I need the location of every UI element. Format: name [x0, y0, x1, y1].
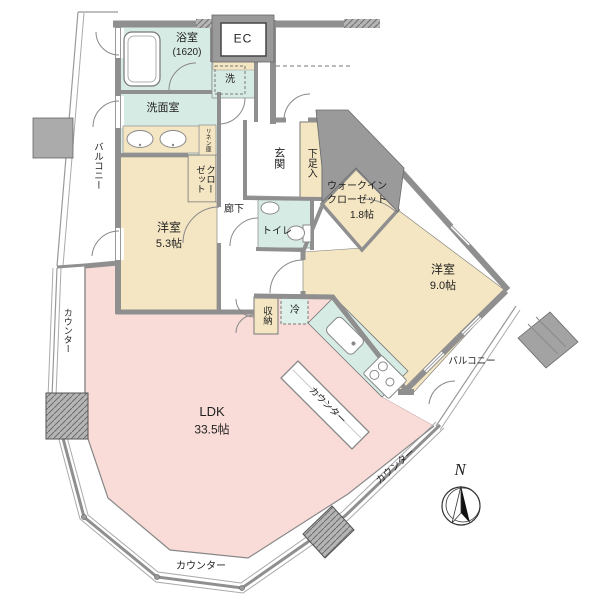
linen-cabinet: [199, 125, 216, 155]
storage-cabinet: [254, 297, 278, 334]
compass-north-icon: [442, 486, 480, 525]
pillar: [46, 393, 88, 439]
pillar: [518, 312, 578, 368]
hatched-wall: [344, 19, 380, 28]
closet-room: [188, 155, 216, 202]
ec-closet: [212, 15, 274, 62]
fridge-box: [281, 298, 308, 324]
floor-plan-drawing: [0, 0, 600, 600]
vanity-sink-icon: [123, 126, 199, 153]
pillar: [33, 118, 73, 158]
floor-plan: 浴室 (1620) EC 洗 洗面室 リネン庫 クローゼット 洋室 5.3帖 廊…: [0, 0, 600, 600]
bathtub-icon: [124, 32, 160, 86]
